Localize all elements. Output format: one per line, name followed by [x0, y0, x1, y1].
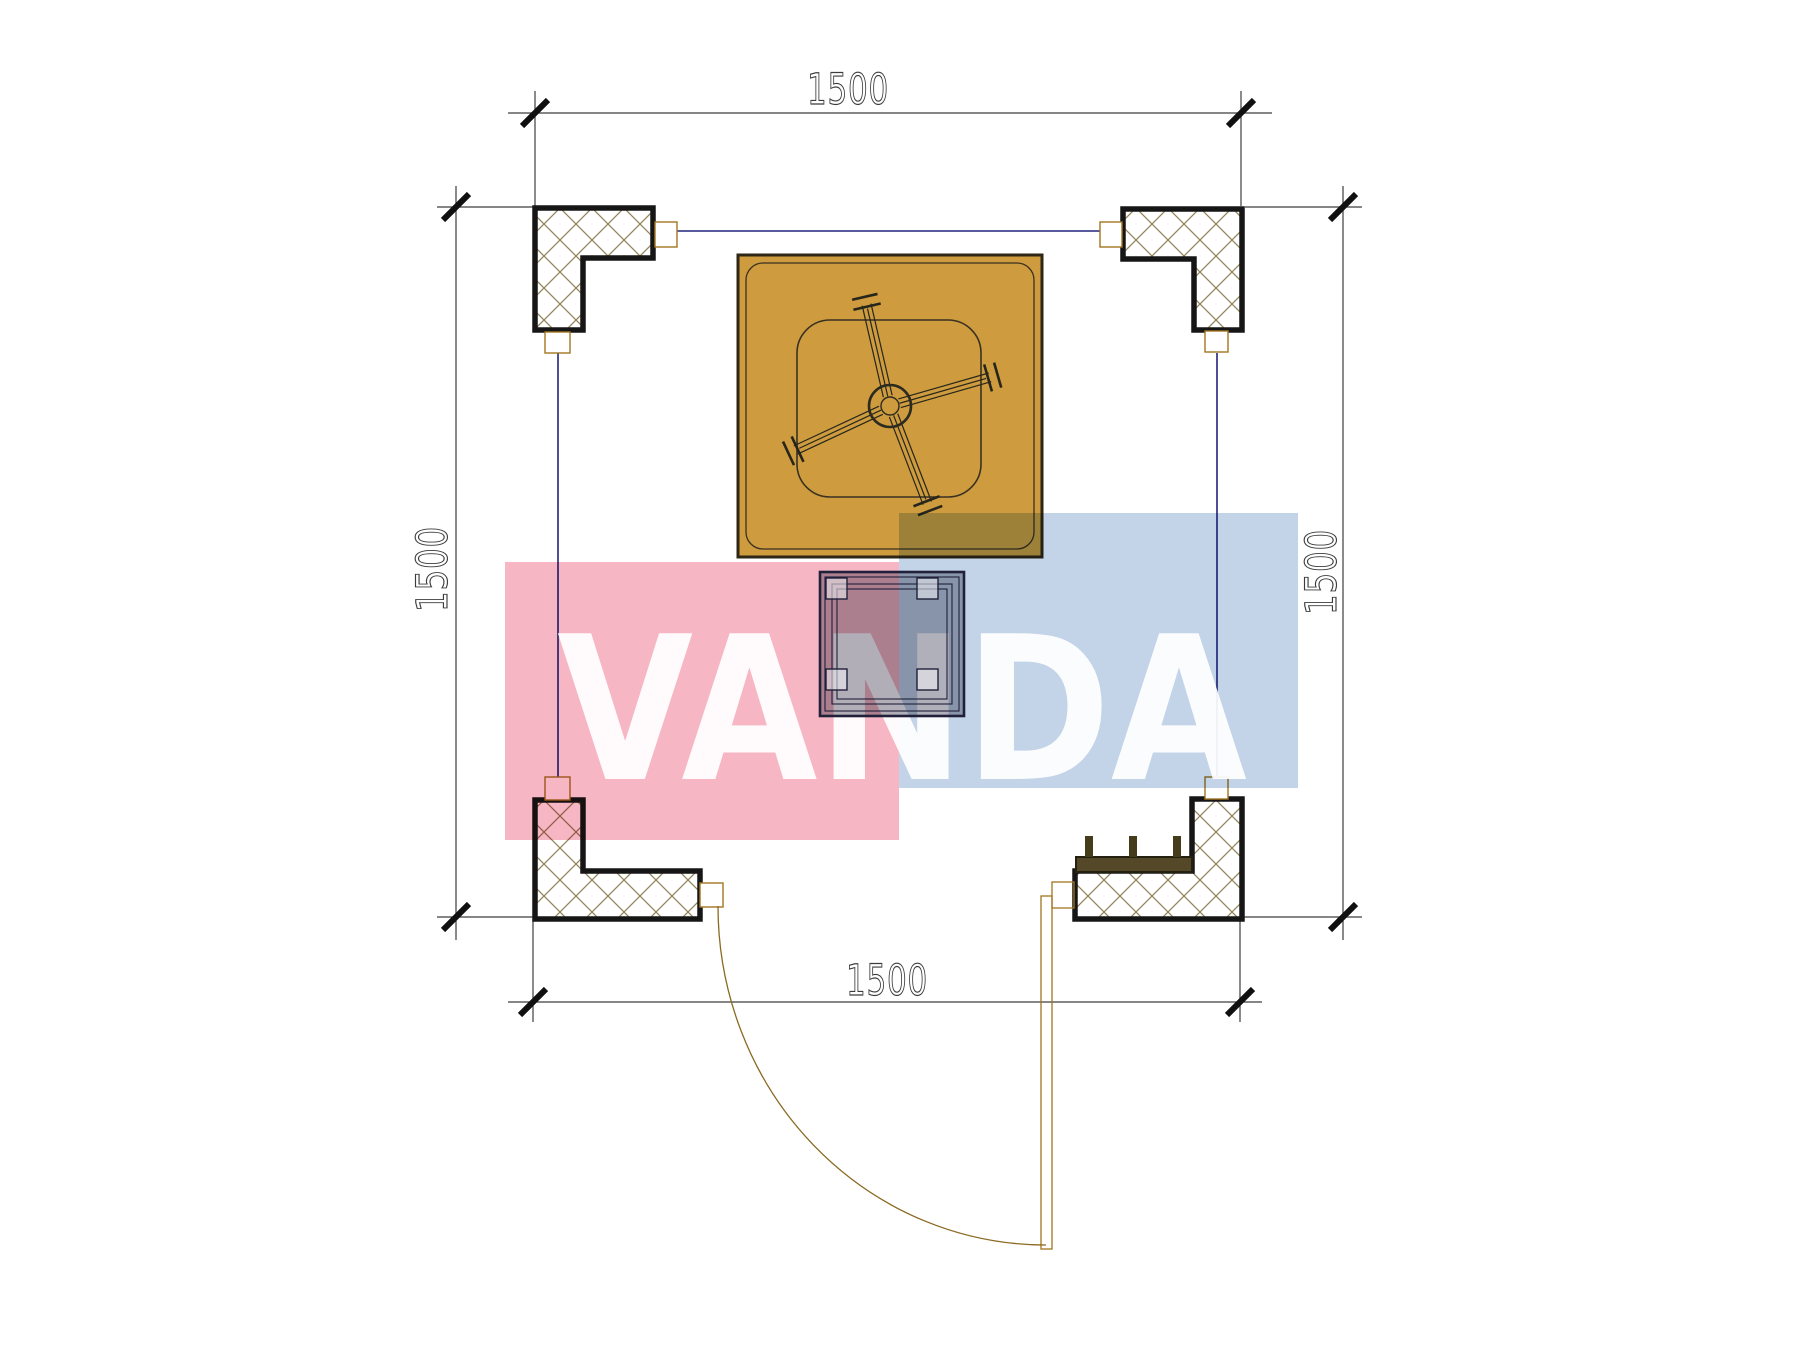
dimension-label-right: 1500	[1297, 529, 1347, 615]
dimension-label-left: 1500	[408, 526, 458, 612]
ceiling-fan-unit	[738, 255, 1042, 557]
dimension-label-top: 1500	[807, 65, 889, 115]
door-swing	[700, 882, 1074, 1249]
corner-column-top-right	[1123, 209, 1242, 330]
table	[820, 572, 964, 716]
bench-seat	[1076, 857, 1192, 872]
corner-column-top-left	[535, 208, 653, 330]
door-leaf	[1041, 896, 1052, 1249]
bench	[1076, 836, 1192, 872]
door-jamb-left	[700, 883, 723, 907]
dimension-label-bottom: 1500	[846, 956, 928, 1006]
door-jamb-right	[1052, 882, 1074, 908]
fan-canopy-square	[738, 255, 1042, 557]
floor-plan-drawing: 1500 1500 1500 1500	[0, 0, 1800, 1350]
floor-plan-canvas: 1500 1500 1500 1500	[0, 0, 1800, 1350]
